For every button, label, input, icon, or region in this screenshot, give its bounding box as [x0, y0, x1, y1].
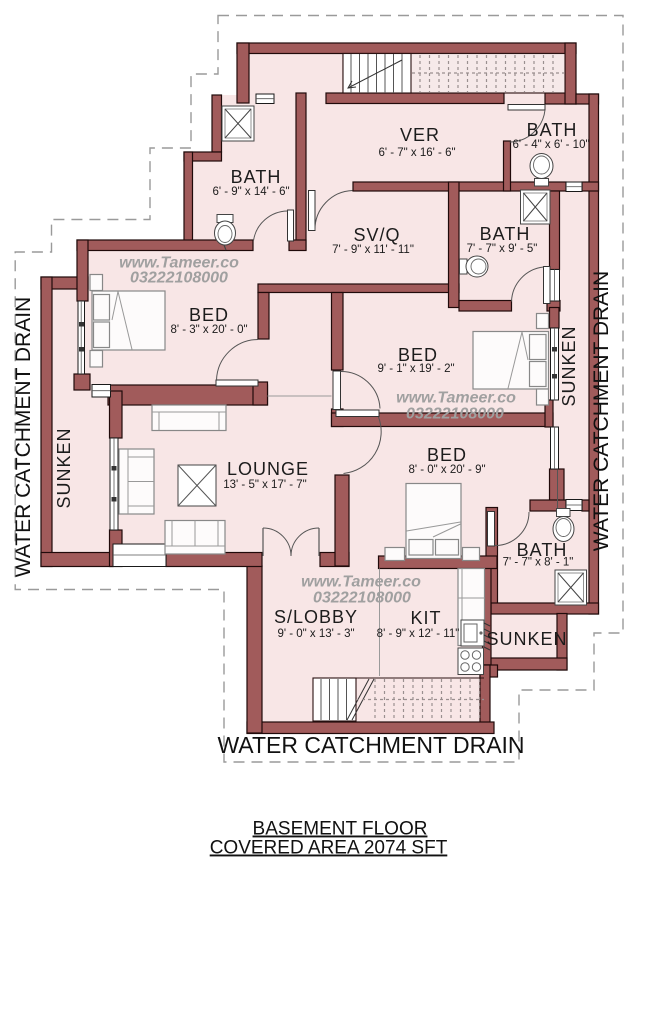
svg-text:BED: BED: [398, 345, 438, 365]
svg-text:6' - 9" x 14' - 6": 6' - 9" x 14' - 6": [212, 186, 289, 198]
svg-text:VER: VER: [400, 125, 440, 145]
svg-text:www.Tameer.co: www.Tameer.co: [301, 574, 421, 591]
svg-text:S/LOBBY: S/LOBBY: [274, 607, 358, 627]
svg-text:7' - 7" x 9' - 5": 7' - 7" x 9' - 5": [467, 243, 538, 255]
svg-text:WATER CATCHMENT DRAIN: WATER CATCHMENT DRAIN: [217, 732, 524, 758]
svg-text:SV/Q: SV/Q: [353, 225, 400, 245]
svg-text:9' - 1" x 19' - 2": 9' - 1" x 19' - 2": [377, 363, 454, 375]
svg-text:8' - 9" x 12' - 11": 8' - 9" x 12' - 11": [377, 628, 460, 640]
svg-text:WATER CATCHMENT DRAIN: WATER CATCHMENT DRAIN: [12, 297, 35, 577]
svg-text:www.Tameer.co: www.Tameer.co: [396, 390, 516, 407]
svg-text:SUNKEN: SUNKEN: [54, 427, 74, 508]
svg-text:BED: BED: [427, 445, 467, 465]
svg-text:7' - 7" x 8' - 1": 7' - 7" x 8' - 1": [503, 557, 574, 569]
svg-text:7' - 9" x 11' - 11": 7' - 9" x 11' - 11": [332, 244, 414, 256]
svg-text:6' - 7" x 16' - 6": 6' - 7" x 16' - 6": [378, 147, 455, 159]
svg-text:SUNKEN: SUNKEN: [486, 629, 567, 649]
svg-text:BASEMENT FLOOR: BASEMENT FLOOR: [253, 819, 428, 840]
svg-text:03222108000: 03222108000: [406, 406, 504, 423]
svg-text:03222108000: 03222108000: [130, 270, 228, 287]
svg-text:6' - 4" x 6' - 10": 6' - 4" x 6' - 10": [512, 139, 589, 151]
svg-text:8' - 0" x 20' - 9": 8' - 0" x 20' - 9": [408, 464, 485, 476]
svg-text:LOUNGE: LOUNGE: [227, 459, 309, 479]
svg-text:BED: BED: [189, 305, 229, 325]
svg-text:BATH: BATH: [231, 167, 282, 187]
svg-text:03222108000: 03222108000: [313, 590, 411, 607]
svg-text:COVERED AREA 2074 SFT: COVERED AREA 2074 SFT: [210, 838, 448, 859]
svg-text:SUNKEN: SUNKEN: [559, 325, 579, 406]
svg-text:BATH: BATH: [480, 224, 531, 244]
svg-text:BATH: BATH: [527, 120, 578, 140]
svg-text:KIT: KIT: [410, 608, 441, 628]
svg-text:8' - 3" x 20' - 0": 8' - 3" x 20' - 0": [170, 324, 247, 336]
svg-text:13' - 5" x 17' - 7": 13' - 5" x 17' - 7": [223, 479, 307, 491]
svg-text:9' - 0" x 13' - 3": 9' - 0" x 13' - 3": [277, 628, 354, 640]
svg-text:WATER CATCHMENT DRAIN: WATER CATCHMENT DRAIN: [590, 271, 613, 551]
